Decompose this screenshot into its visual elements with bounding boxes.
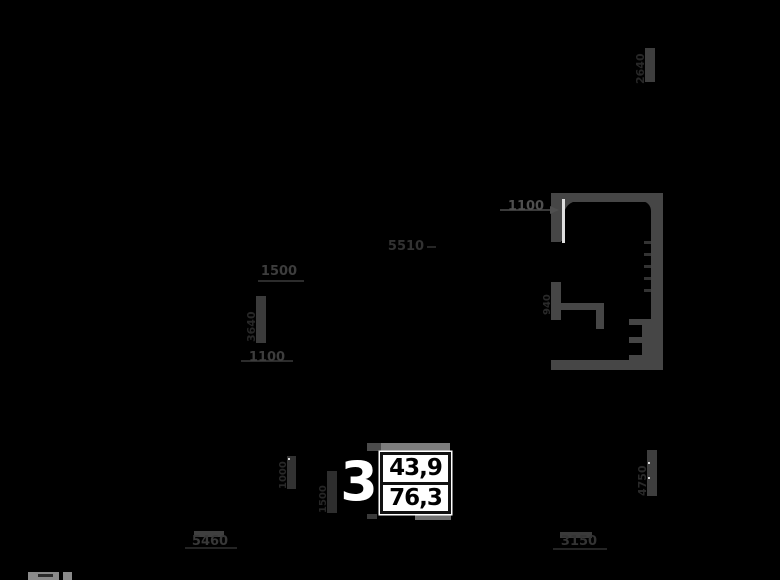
dimension-vertical-room-left: 940 [542, 287, 553, 315]
dimension-width-1500: 1500 [259, 264, 299, 279]
dimension-width-1100-left: 1100 [244, 350, 290, 365]
apartment-area-box: 43,9 76,3 [380, 452, 451, 514]
dimension-width-5510: 5510 [386, 239, 426, 254]
wall-fragment [375, 443, 450, 451]
window-dash [644, 253, 651, 256]
window-dash [644, 265, 651, 268]
dimension-bottom-right: 3150 [557, 534, 601, 549]
dimension-line [185, 547, 237, 549]
dimension-vertical-inner-b: 1500 [318, 471, 329, 513]
wall-fragment [415, 514, 451, 520]
logo-fragment [63, 572, 72, 580]
logo-fragment-dash [38, 574, 53, 577]
dimension-line [258, 280, 304, 282]
dimension-tick [427, 246, 436, 248]
shaft-notch [629, 325, 642, 337]
dimension-door-width: 1100 [503, 199, 549, 214]
dimension-vertical-top-right: 2640 [634, 44, 647, 84]
balcony-glazing-interior [564, 201, 651, 250]
dimension-vertical-left: 3640 [245, 299, 258, 342]
dimension-line [553, 548, 607, 550]
window-dash [644, 277, 651, 280]
wall-right [651, 193, 663, 370]
window-dash [644, 289, 651, 292]
wall-fragment [367, 514, 377, 519]
wall-inner-vertical [596, 303, 604, 329]
dimension-vertical-inner-a: 1000 [278, 456, 289, 489]
apartment-total-area: 76,3 [383, 482, 448, 512]
window-dash [644, 241, 651, 244]
apartment-living-area: 43,9 [383, 455, 448, 482]
apartment-number: 3 [338, 450, 380, 514]
dimension-vertical-right: 4750 [636, 450, 649, 496]
dimension-arrow-icon [550, 206, 559, 214]
shaft-notch [629, 343, 642, 355]
door-leaf [562, 199, 565, 243]
wall-top [551, 193, 663, 202]
floor-plan-canvas: 1100 1500 5510 1100 5460 3150 2640 3640 … [0, 0, 780, 580]
